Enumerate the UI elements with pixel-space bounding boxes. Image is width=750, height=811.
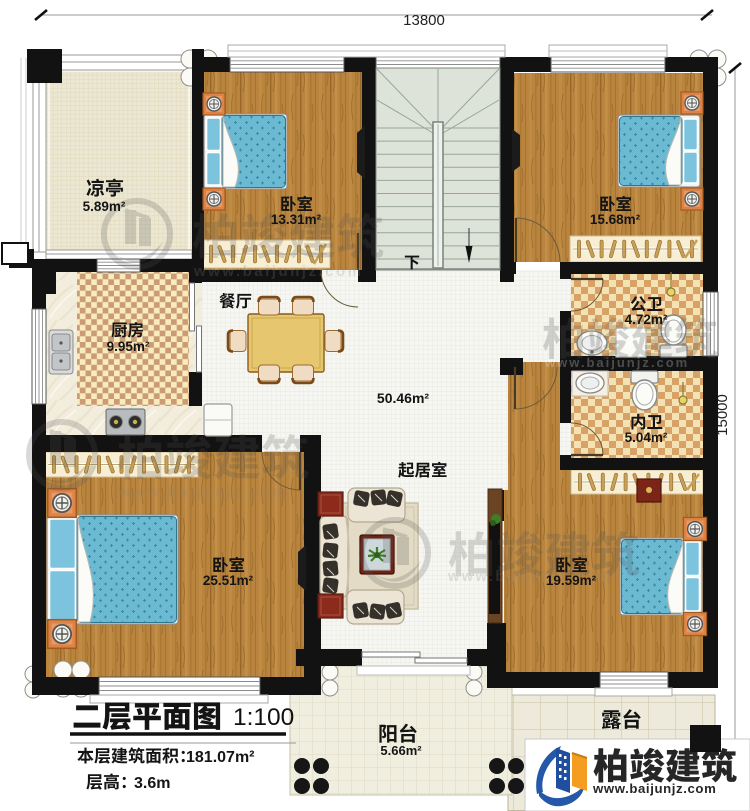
svg-text:5.04m²: 5.04m²	[625, 430, 668, 445]
svg-text:www.baijunjz.com: www.baijunjz.com	[544, 355, 689, 370]
svg-text:www.baijunjz.com: www.baijunjz.com	[592, 781, 716, 796]
svg-text:19.59m²: 19.59m²	[546, 573, 597, 588]
svg-text:13.31m²: 13.31m²	[271, 212, 322, 227]
svg-text:5.66m²: 5.66m²	[380, 743, 422, 758]
svg-text:25.51m²: 25.51m²	[203, 573, 254, 588]
svg-text:50.46m²: 50.46m²	[377, 390, 429, 406]
svg-text:13800: 13800	[403, 12, 445, 29]
svg-text:4.72m²: 4.72m²	[625, 312, 668, 327]
svg-text:9.95m²: 9.95m²	[107, 339, 150, 354]
svg-text:181.07m²: 181.07m²	[186, 749, 255, 766]
svg-text:www.baijunjz.com: www.baijunjz.com	[193, 263, 363, 280]
svg-text:3.6m: 3.6m	[134, 775, 170, 792]
svg-text:www.baijunjz.com: www.baijunjz.com	[118, 484, 288, 501]
svg-text:5.89m²: 5.89m²	[83, 199, 126, 214]
svg-text:1:100: 1:100	[233, 704, 294, 731]
svg-text:15.68m²: 15.68m²	[590, 212, 641, 227]
